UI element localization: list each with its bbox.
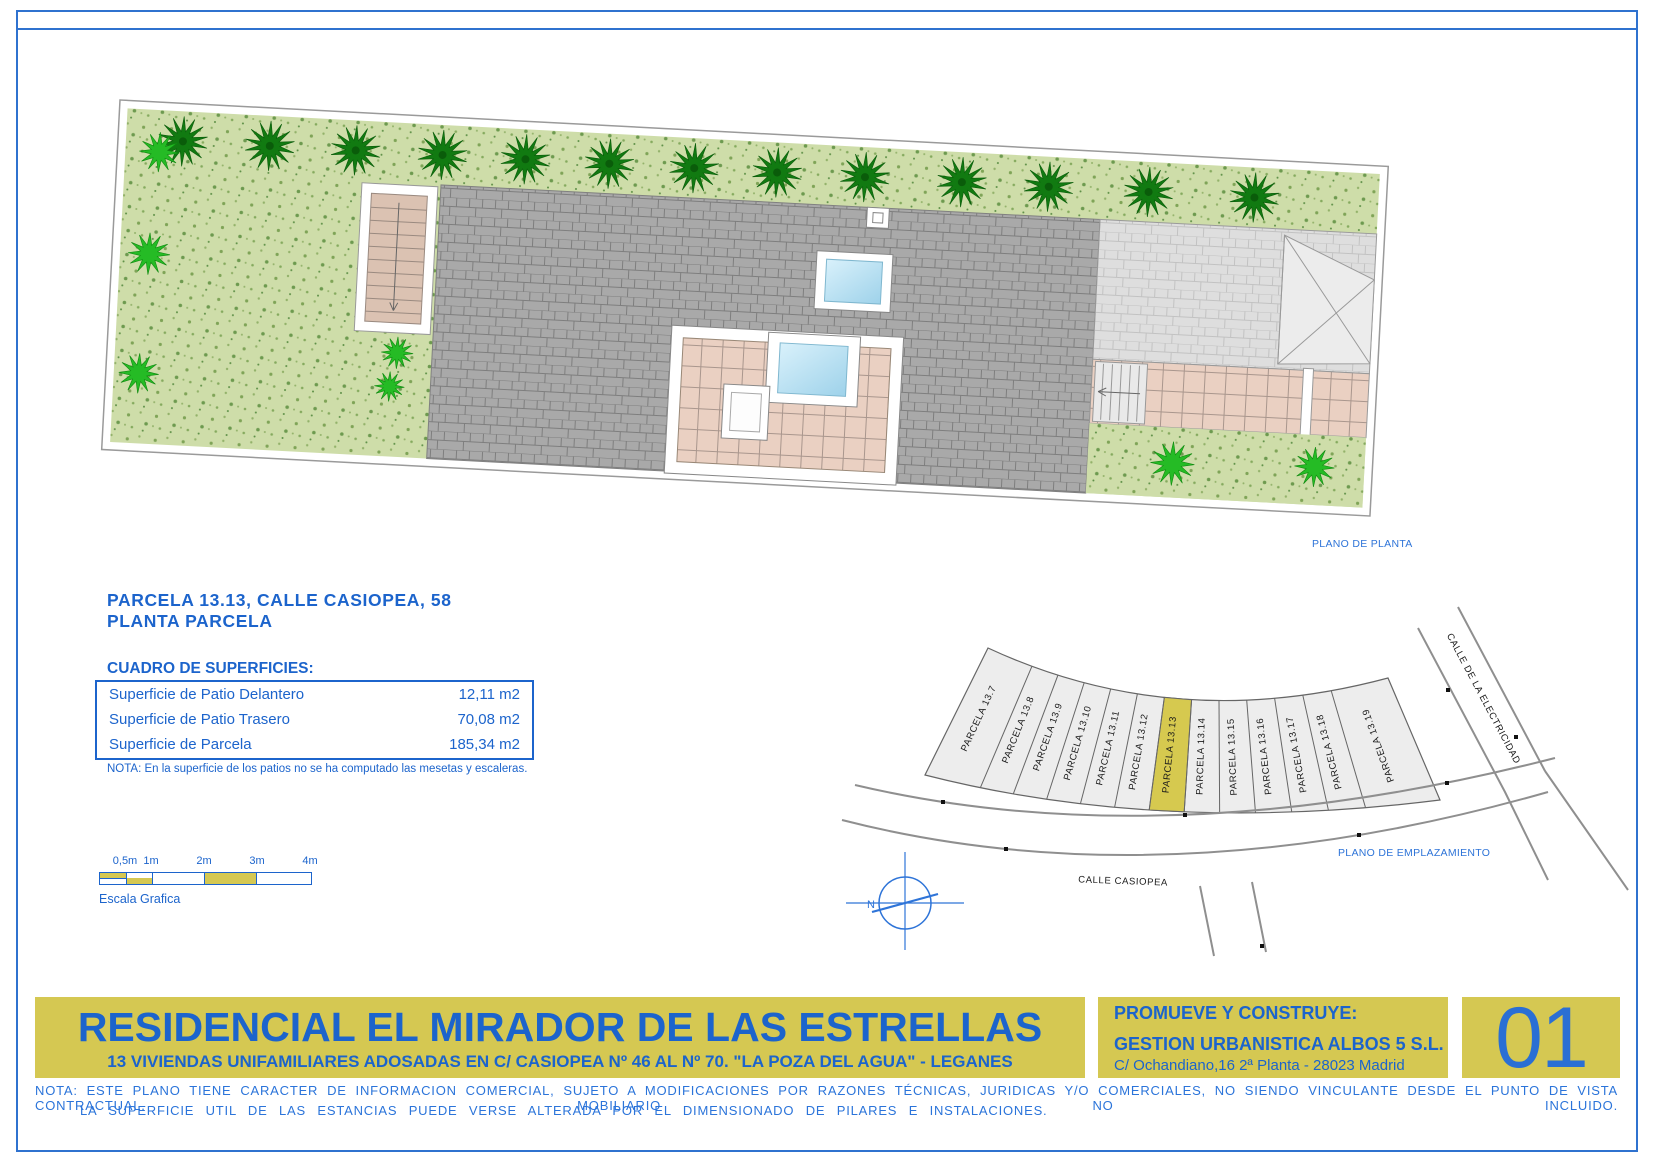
roof-vent (866, 207, 889, 228)
street-casiopea-label: CALLE CASIOPEA (1078, 874, 1168, 888)
row-label: Superficie de Patio Trasero (109, 707, 290, 732)
location-plan-drawing: PARCELA 13.7PARCELA 13.8PARCELA 13.9PARC… (830, 600, 1640, 960)
row-label: Superficie de Patio Delantero (109, 682, 304, 707)
scale-tick-label: 1m (143, 855, 158, 867)
parcel-title-line2: PLANTA PARCELA (107, 611, 452, 632)
row-label: Superficie de Parcela (109, 732, 252, 757)
footer-note-line2: LA SUPERFICIE UTIL DE LAS ESTANCIAS PUED… (80, 1103, 1047, 1118)
title-block-promoter: PROMUEVE Y CONSTRUYE: GESTION URBANISTIC… (1098, 997, 1448, 1078)
promoter-address: C/ Ochandiano,16 2ª Planta - 28023 Madri… (1114, 1057, 1448, 1074)
project-title: RESIDENCIAL EL MIRADOR DE LAS ESTRELLAS (78, 1004, 1042, 1050)
side-junction-lines (1200, 882, 1266, 956)
row-value: 185,34 m2 (449, 732, 520, 757)
graphic-scale-bar (99, 872, 312, 885)
north-label: N (867, 899, 875, 911)
row-value: 70,08 m2 (457, 707, 520, 732)
plano-planta-caption: PLANO DE PLANTA (1312, 538, 1413, 550)
parcel-title: PARCELA 13.13, CALLE CASIOPEA, 58 PLANTA… (107, 590, 452, 632)
table-row: Superficie de Parcela 185,34 m2 (97, 732, 532, 757)
rear-stair (1093, 361, 1148, 424)
parcel-fan: PARCELA 13.7PARCELA 13.8PARCELA 13.9PARC… (925, 648, 1440, 813)
promoter-name: GESTION URBANISTICA ALBOS 5 S.L. (1114, 1034, 1448, 1055)
site-plan-drawing (100, 85, 1410, 565)
surfaces-table: Superficie de Patio Delantero 12,11 m2 S… (95, 680, 534, 760)
north-compass-icon (846, 852, 964, 950)
scale-tick-label: 4m (302, 855, 317, 867)
project-subtitle: 13 VIVIENDAS UNIFAMILIARES ADOSADAS EN C… (107, 1052, 1012, 1072)
scale-caption: Escala Grafica (99, 892, 180, 906)
scale-tick-label: 3m (249, 855, 264, 867)
scale-tick-label: 2m (196, 855, 211, 867)
patio (664, 325, 903, 485)
table-row: Superficie de Patio Trasero 70,08 m2 (97, 707, 532, 732)
roof-skylight (814, 251, 893, 313)
hatch-inner (730, 392, 762, 432)
parcel-divider (1219, 701, 1220, 813)
entrance-stair (354, 183, 438, 335)
plano-emplazamiento-caption: PLANO DE EMPLAZAMIENTO (1338, 847, 1490, 859)
parcel-label: PARCELA 13.14 (1194, 717, 1207, 795)
plan-sheet: { "captions": { "plano_planta": "PLANO D… (0, 0, 1654, 1169)
row-value: 12,11 m2 (459, 682, 520, 707)
title-block-sheet: 01 (1462, 997, 1620, 1078)
table-row: Superficie de Patio Delantero 12,11 m2 (97, 682, 532, 707)
parcel-title-line1: PARCELA 13.13, CALLE CASIOPEA, 58 (107, 590, 452, 611)
surfaces-heading: CUADRO DE SUPERFICIES: (107, 660, 314, 678)
promoter-heading: PROMUEVE Y CONSTRUYE: (1114, 1003, 1448, 1024)
title-block-main: RESIDENCIAL EL MIRADOR DE LAS ESTRELLAS … (35, 997, 1085, 1078)
page-border-topline (16, 28, 1638, 30)
sheet-number: 01 (1495, 998, 1587, 1078)
skylight-glass (778, 343, 849, 396)
surfaces-note: NOTA: En la superficie de los patios no … (107, 763, 527, 775)
scale-tick-label: 0,5m (113, 855, 137, 867)
